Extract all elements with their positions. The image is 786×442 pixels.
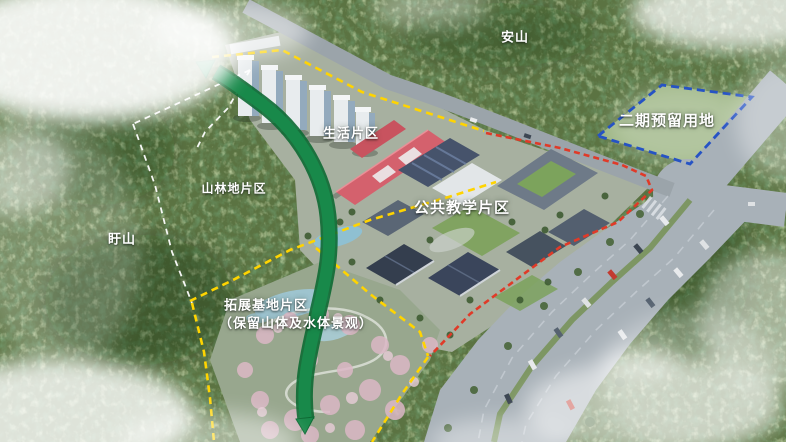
east-road [692, 198, 786, 210]
campus-master-plan-aerial: 安山 二期预留用地 生活片区 山林地片区 盱山 公共教学片区 拓展基地片区 （保… [0, 0, 786, 442]
aerial-render [0, 0, 786, 442]
